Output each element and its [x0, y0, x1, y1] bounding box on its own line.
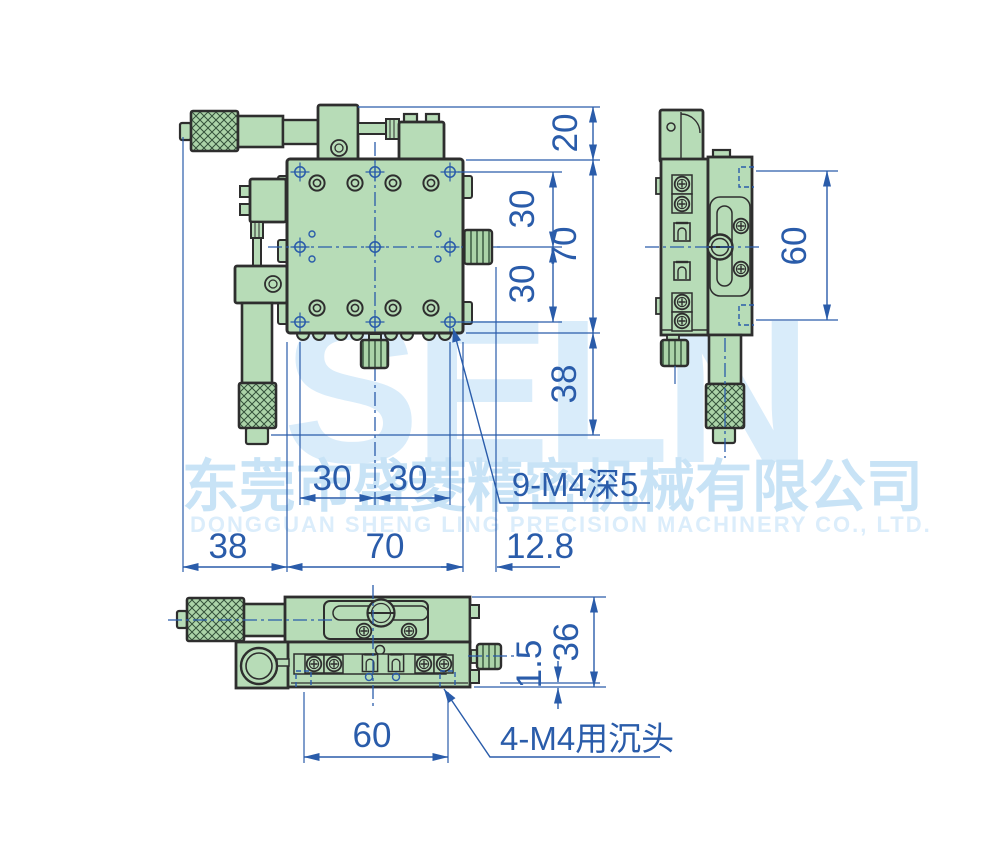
dim-30-upper: 30	[503, 190, 542, 229]
dim-38-horizontal: 38	[209, 527, 248, 566]
y-adjust-knob	[361, 334, 388, 368]
drawing-canvas: SELN 东莞市盛菱精密机械有限公司 DONGGUAN SHENG LING P…	[0, 0, 1001, 853]
front-view	[168, 585, 530, 710]
micrometer-thimble	[191, 111, 238, 151]
dim-60-side: 60	[775, 227, 814, 266]
dim-38-vertical: 38	[545, 365, 584, 404]
callout-4-m4: 4-M4用沉头	[444, 689, 674, 757]
technical-drawing-sheet: SELN 东莞市盛菱精密机械有限公司 DONGGUAN SHENG LING P…	[0, 0, 1001, 853]
dim-1-5: 1.5	[510, 640, 549, 689]
front-left-bracket	[236, 642, 289, 688]
x-axis-micrometer	[180, 105, 444, 161]
dim-70-horizontal: 70	[366, 527, 405, 566]
dim-60-front: 60	[353, 716, 392, 755]
dim-30-left: 30	[313, 459, 352, 498]
callout-4-m4-label: 4-M4用沉头	[500, 720, 674, 757]
dim-36: 36	[547, 623, 586, 662]
dim-30-lower: 30	[503, 265, 542, 304]
callout-9-m4-label: 9-M4深5	[512, 466, 639, 503]
dim-20: 20	[546, 114, 585, 153]
micrometer-thimble	[239, 383, 276, 428]
dim-70-vertical: 70	[545, 227, 584, 266]
dim-30-right: 30	[389, 459, 428, 498]
x-adjust-knob	[464, 230, 492, 264]
dim-12-8: 12.8	[506, 527, 574, 566]
